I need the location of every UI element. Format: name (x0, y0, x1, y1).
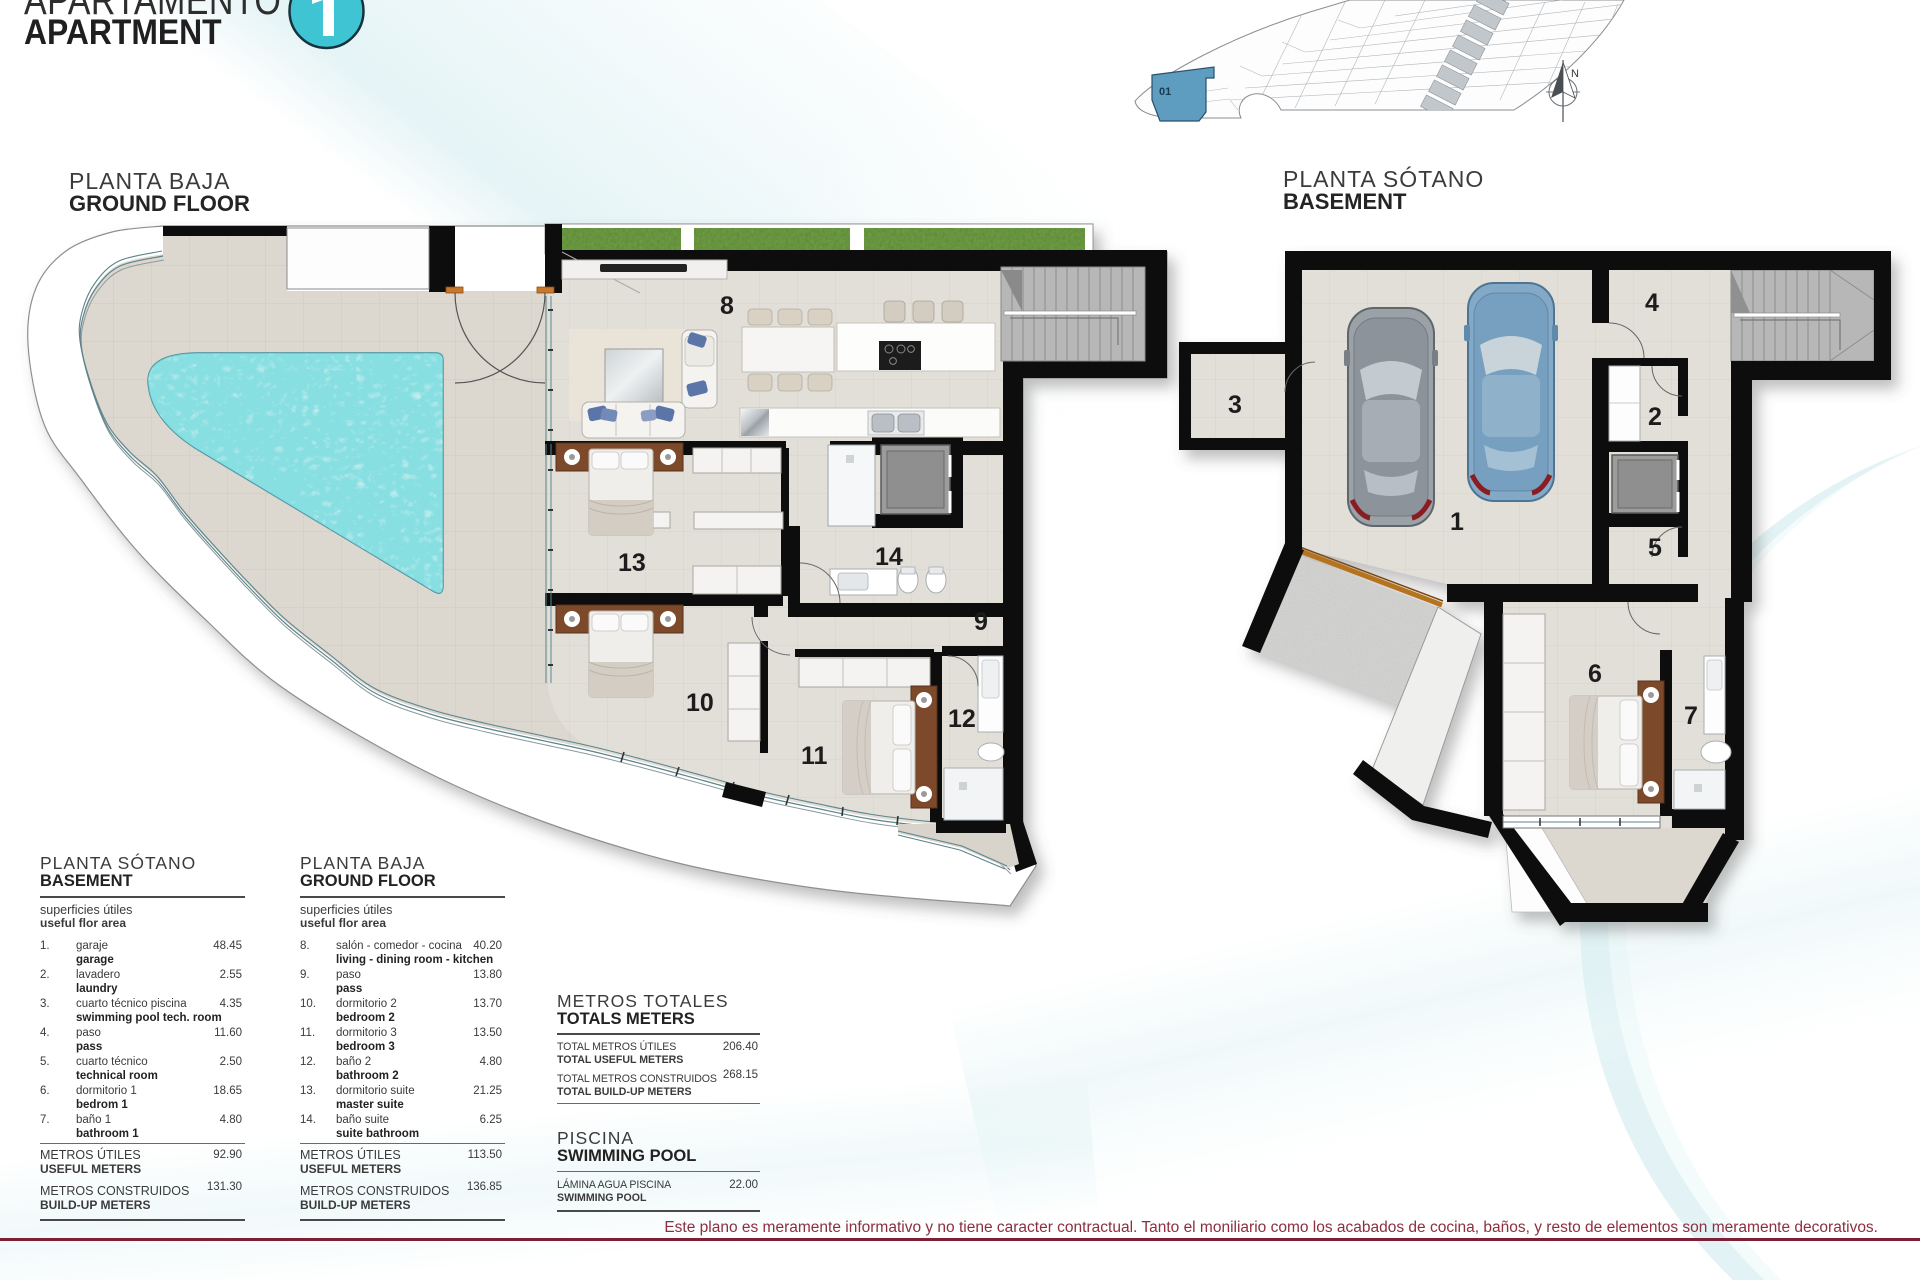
svg-text:8: 8 (720, 292, 734, 320)
svg-text:6: 6 (1588, 660, 1602, 688)
svg-text:N: N (1571, 68, 1579, 80)
svg-text:11: 11 (801, 742, 828, 770)
svg-text:13: 13 (618, 549, 646, 577)
svg-text:12: 12 (948, 705, 976, 733)
svg-text:3: 3 (1228, 391, 1242, 419)
svg-text:9: 9 (974, 608, 988, 636)
svg-text:4: 4 (1645, 289, 1659, 317)
svg-text:2: 2 (1648, 403, 1662, 431)
svg-text:14: 14 (875, 543, 903, 571)
svg-text:1: 1 (1450, 508, 1464, 536)
svg-text:5: 5 (1648, 534, 1662, 562)
svg-text:01: 01 (1159, 86, 1171, 98)
svg-text:10: 10 (686, 689, 714, 717)
svg-text:7: 7 (1684, 702, 1698, 730)
